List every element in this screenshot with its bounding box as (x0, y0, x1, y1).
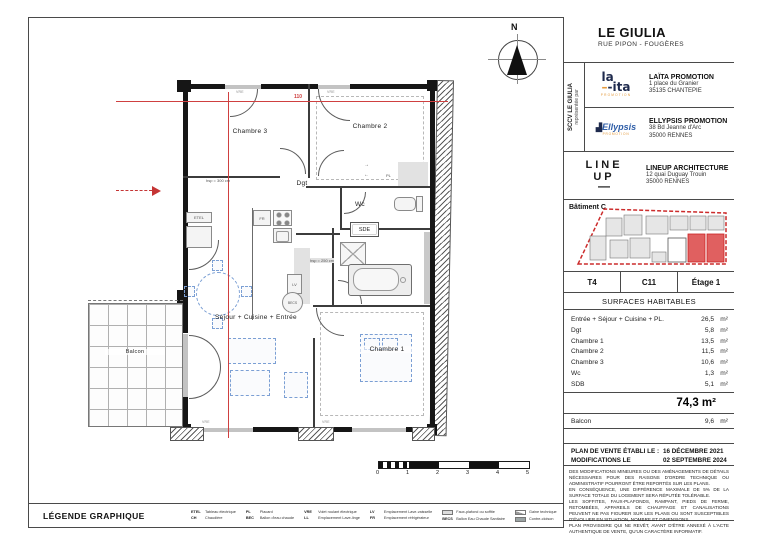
wall-corner-post (177, 80, 191, 92)
ellypsis-logo-sub: PROMOTION (603, 132, 630, 136)
legend-col: PLPlacard BECBallon d'eau chaude (246, 510, 294, 522)
section-arrow-line (116, 190, 152, 191)
vre-label: VRE (322, 420, 330, 424)
scale-seg (409, 462, 439, 468)
project-title: LE GIULIA (598, 25, 728, 40)
scale-label: 1 (406, 470, 409, 476)
surface-row: SDB5,1m² (571, 380, 728, 391)
architect-section: LINE UP — LINEUP ARCHITECTURE 12 quai Du… (564, 152, 734, 200)
scale-seg (379, 462, 409, 468)
legend-col: Faux-plafond ou soffite BECSBallon Eau C… (442, 510, 505, 522)
surface-label: Chambre 1 (571, 337, 690, 348)
section-arrow-icon (152, 186, 161, 196)
surface-unit: m² (714, 326, 728, 337)
legend-col: VREVolet roulant électrique LLEmplacemen… (304, 510, 360, 522)
promoter-addr1: 38 Bd Jeanne d'Arc (649, 125, 734, 133)
scale-seg (499, 462, 529, 468)
surface-row: Wc1,3m² (571, 369, 728, 380)
surface-label: Chambre 3 (571, 358, 690, 369)
promoter-ellypsis-row: ▟Ellypsis PROMOTION ELLYPSIS PROMOTION 3… (585, 107, 734, 152)
disclaimer-line: PLAN PROVISOIRE QUI NE REVÊT, AVANT D'ÊT… (569, 523, 729, 535)
surface-unit: m² (714, 315, 728, 326)
legend-abbr: PL (246, 510, 257, 514)
batiment-c-miniplan (572, 204, 732, 268)
fridge-slot: FR (253, 210, 271, 226)
pl-arrow-left: ← (364, 172, 369, 178)
pier-hatch (412, 427, 435, 441)
cooktop (273, 210, 292, 226)
wall-corner-post (427, 80, 437, 91)
unit-floor: Étage 1 (677, 272, 734, 292)
partition-dgt-sejour (296, 233, 340, 235)
scale-label: 0 (376, 470, 379, 476)
hsp250-label: hsp = 250 cm (310, 258, 334, 263)
legend-label: Faux-plafond ou soffite (456, 510, 495, 514)
unit-type: T4 (564, 272, 620, 292)
disclaimer: DES MODIFICATIONS MINEURES OU DES AMÉNAG… (564, 466, 734, 521)
dimension-110: 110 (294, 94, 302, 100)
bathtub-icon (348, 264, 412, 296)
surface-value: 26,5 (690, 315, 714, 326)
legend-col: Gaine technique Contre-cloison (515, 510, 557, 522)
contre-cloison-swatch (515, 517, 526, 522)
legend-label: Ballon d'eau chaude (260, 516, 294, 520)
fr-label: FR (259, 216, 264, 221)
legend-label: Gaine technique (529, 510, 557, 514)
sde-box: SDE (350, 222, 379, 237)
legend-strip: LÉGENDE GRAPHIQUE ETELTableau électrique… (28, 503, 563, 528)
room-label-balcon: Balcon (105, 349, 165, 355)
batiment-section: Bâtiment C (564, 200, 734, 272)
vre-label: VRE (327, 90, 335, 94)
total-surface: 74,3 m² (564, 393, 734, 414)
legend-abbr: FR (370, 516, 381, 520)
chair (184, 286, 195, 297)
legend-col: LVEmplacement Lave-vaisselle FREmplaceme… (370, 510, 432, 522)
legend-label: Volet roulant électrique (318, 510, 357, 514)
vre-label: VRE (236, 90, 244, 94)
title-block-spacer (564, 429, 734, 443)
partition-ch3-ch2 (308, 84, 310, 178)
surface-unit: m² (714, 347, 728, 358)
chair (241, 286, 252, 297)
lineup-logo: LINE UP — (564, 160, 644, 190)
room-label-chambre1: Chambre 1 (352, 346, 422, 353)
surface-value: 5,1 (690, 380, 714, 391)
legend-label: Emplacement Lave-vaisselle (384, 510, 432, 514)
etel-box: ETEL (186, 212, 212, 223)
laita-logo: la–-ita PROMOTION (585, 72, 647, 97)
surface-value: 13,5 (690, 337, 714, 348)
entry-closet (186, 226, 212, 248)
partition-wc-left (340, 188, 342, 228)
bathtub-drain (400, 277, 406, 283)
surface-value: 10,6 (690, 358, 714, 369)
modif-date-label: MODIFICATIONS LE (571, 456, 663, 465)
surface-label: Dgt (571, 326, 690, 337)
surface-row: Entrée + Séjour + Cuisine + PL.26,5m² (571, 315, 728, 326)
promoter-name: LAÏTA PROMOTION (649, 74, 734, 81)
toilet-tank (416, 196, 423, 212)
legend-label: Tableau électrique (205, 510, 236, 514)
legend-label: Chaudière (205, 516, 223, 520)
sccv-cell: SCCV LE GIULIA représentée par (564, 63, 585, 151)
lv-label: LV (292, 282, 297, 287)
disclaimer-line: LES SOFFITES, FAUX-PLAFONDS, RAMPANT, PI… (569, 499, 729, 523)
disclaimer-line: DES MODIFICATIONS MINEURES OU DES AMÉNAG… (569, 469, 729, 487)
legend-label: Placard (260, 510, 273, 514)
promoter-addr1: 1 place du Granier (649, 81, 734, 89)
sofa (228, 338, 276, 364)
legend-abbr: BEC (246, 516, 257, 520)
pl-arrow-right: → (364, 162, 369, 168)
balcony (88, 303, 183, 427)
hsp300-label: hsp = 300 cm (206, 178, 230, 183)
room-label-chambre3: Chambre 3 (215, 128, 285, 135)
modif-date-value: 02 SEPTEMBRE 2024 (663, 456, 727, 465)
balcon-unit: m² (714, 418, 728, 425)
legend-abbr: LV (370, 510, 381, 514)
legend-abbr: VRE (304, 510, 315, 514)
north-arrow-icon (507, 45, 527, 75)
promoter-addr2: 35000 RENNES (649, 133, 734, 141)
section-line-vertical (228, 92, 229, 438)
scale-label: 3 (466, 470, 469, 476)
surfaces-title: SURFACES HABITABLES (564, 293, 734, 310)
faux-plafond-swatch (442, 510, 453, 515)
ellypsis-logo: ▟Ellypsis PROMOTION (585, 122, 647, 136)
partition-ch1-top (313, 305, 430, 307)
scale-seg (439, 462, 469, 468)
lineup-logo-dash: — (564, 183, 644, 190)
balcon-row: Balcon 9,6 m² (564, 414, 734, 429)
surface-value: 11,5 (690, 347, 714, 358)
ellypsis-logo-text: Ellypsis (602, 122, 636, 132)
unit-number: C11 (620, 272, 677, 292)
disclaimer-line: EN CONSÉQUENCE, UNE DIFFÉRENCE MAXIMALE … (569, 487, 729, 499)
wall-right (430, 84, 435, 432)
surface-row: Chambre 113,5m² (571, 337, 728, 348)
unit-row: T4 C11 Étage 1 (564, 272, 734, 293)
surface-row: Chambre 310,6m² (571, 358, 728, 369)
legend-abbr: CH (191, 516, 202, 520)
scale-label: 5 (526, 470, 529, 476)
sccv-sub: représentée par (574, 83, 580, 131)
etel-label: ETEL (194, 215, 204, 220)
architect-addr2: 35000 RENNES (646, 179, 734, 187)
faux-plafond-area (398, 162, 428, 188)
scale-label: 2 (436, 470, 439, 476)
promoter-addr2: 35135 CHANTEPIE (649, 88, 734, 96)
legend-label: Contre-cloison (529, 517, 553, 521)
sde-label: SDE (359, 227, 370, 233)
chair (212, 260, 223, 271)
legend-label: Emplacement Lave-linge (318, 516, 360, 520)
bed-chambre1 (360, 334, 412, 382)
title-block: LE GIULIA RUE PIPON - FOUGÈRES SCCV LE G… (563, 17, 734, 528)
legend-abbr: LL (304, 516, 315, 520)
room-label-sejour: Séjour + Cuisine + Entrée (200, 314, 312, 321)
room-label-chambre2: Chambre 2 (335, 123, 405, 130)
toilet-icon (394, 197, 416, 211)
section-line-horizontal (116, 101, 448, 102)
surface-unit: m² (714, 380, 728, 391)
gaine-technique-swatch (515, 510, 526, 515)
surface-row: Chambre 211,5m² (571, 347, 728, 358)
architect-name: LINEUP ARCHITECTURE (646, 165, 734, 172)
surface-label: Wc (571, 369, 690, 380)
surface-label: SDB (571, 380, 690, 391)
balcon-value: 9,6 (690, 418, 714, 425)
room-label-wc: Wc (348, 201, 372, 208)
balcony-door-window (183, 333, 188, 397)
pier-hatch (170, 427, 204, 441)
promoters-section: SCCV LE GIULIA représentée par la–-ita P… (564, 63, 734, 152)
title-block-header: LE GIULIA RUE PIPON - FOUGÈRES (564, 17, 734, 63)
plan-de-vente-sheet: N ETEL (0, 0, 768, 543)
legend-label: Emplacement réfrigérateur (384, 516, 429, 520)
dining-table (196, 272, 240, 316)
sink-bowl (276, 231, 289, 242)
legend-abbr: ETEL (191, 510, 202, 514)
legend-col: ETELTableau électrique CHChaudière (191, 510, 236, 522)
surface-label: Entrée + Séjour + Cuisine + PL. (571, 315, 690, 326)
project-address: RUE PIPON - FOUGÈRES (598, 41, 728, 48)
window-bottom-chambre1 (352, 427, 406, 432)
partition-ch1-left (313, 338, 315, 427)
surface-value: 5,8 (690, 326, 714, 337)
legend-title: LÉGENDE GRAPHIQUE (29, 511, 191, 521)
surface-value: 1,3 (690, 369, 714, 380)
sofa-2 (230, 370, 270, 396)
pl-label: PL (386, 173, 391, 178)
surface-unit: m² (714, 337, 728, 348)
legend-abbr: BECS (442, 517, 453, 521)
architect-addr1: 12 quai Duguay Trouin (646, 172, 734, 180)
room-label-dgt: Dgt (288, 180, 316, 187)
plan-date-label: PLAN DE VENTE ÉTABLI LE : (571, 447, 663, 456)
laita-logo-text2: -ita (608, 80, 631, 94)
washer-slot (340, 242, 366, 266)
surface-label: Chambre 2 (571, 347, 690, 358)
surface-row: Dgt5,8m² (571, 326, 728, 337)
north-label: N (511, 22, 518, 32)
scale-bar (378, 461, 530, 469)
partition-ch2-bottom (306, 186, 430, 188)
scale-label: 4 (496, 470, 499, 476)
partition-ch3-bottom (183, 176, 280, 178)
becs-label: BECS (288, 301, 297, 305)
scale-seg (469, 462, 499, 468)
kitchen-sink (273, 228, 292, 243)
surface-unit: m² (714, 358, 728, 369)
bathtub-inner (353, 268, 399, 291)
promoter-name: ELLYPSIS PROMOTION (649, 118, 734, 125)
legend-label: Ballon Eau Chaude Sanitaire (456, 517, 505, 521)
lv-slot: LV (287, 274, 302, 294)
balcony-edge-dashed (88, 300, 183, 301)
promoter-laita-row: la–-ita PROMOTION LAÏTA PROMOTION 1 plac… (585, 63, 734, 107)
surface-unit: m² (714, 369, 728, 380)
partition-sdb-left (332, 228, 334, 306)
plan-date-value: 16 DÉCEMBRE 2021 (663, 447, 724, 456)
surfaces-table: Entrée + Séjour + Cuisine + PL.26,5m² Dg… (564, 310, 734, 393)
armchair (284, 372, 308, 398)
dates-section: PLAN DE VENTE ÉTABLI LE :16 DÉCEMBRE 202… (564, 443, 734, 466)
vre-label: VRE (202, 420, 210, 424)
becs-tank: BECS (282, 292, 303, 313)
pier-hatch (298, 427, 334, 441)
balcon-label: Balcon (571, 418, 690, 425)
laita-logo-sub: PROMOTION (601, 93, 631, 97)
